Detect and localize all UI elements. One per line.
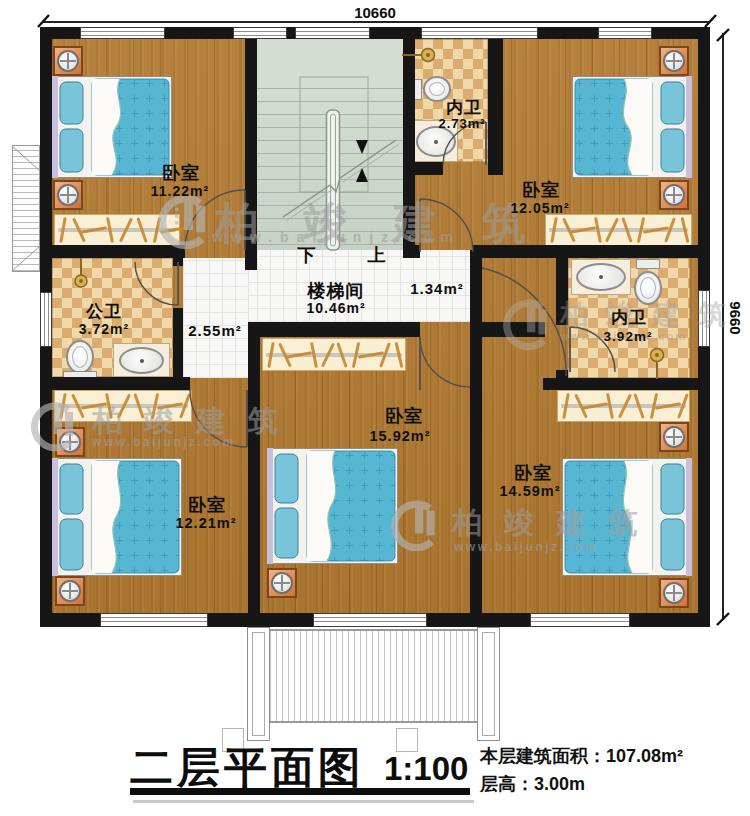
window	[598, 27, 652, 39]
room-area-bath-public: 3.72m²	[79, 321, 129, 337]
nightstand	[55, 576, 85, 606]
wall	[543, 378, 698, 390]
room-label-bedroom-bottom-left: 卧室	[188, 493, 226, 517]
wall	[248, 322, 420, 337]
stair-up-label: 上	[368, 243, 387, 267]
room-area-bath-inner-right: 3.92m²	[604, 329, 653, 344]
nightstand	[659, 46, 689, 76]
hallway-floor-joint	[248, 270, 257, 322]
wall	[488, 39, 503, 175]
window	[421, 27, 538, 39]
sink-basin	[119, 347, 164, 374]
lamp-icon	[57, 184, 79, 206]
stair-down-label: 下	[298, 243, 317, 267]
wardrobe	[262, 338, 406, 371]
dimension-line-top	[43, 21, 710, 23]
lamp-icon	[663, 50, 685, 72]
floor-plan-sheet: 10660 9660 柏竣建筑 www.baijunjz.com 柏竣建筑 ww…	[0, 0, 750, 816]
room-area-bedroom-bottom-left: 12.21m²	[175, 515, 236, 531]
wall	[470, 250, 482, 322]
window	[313, 613, 427, 627]
title-underline	[130, 788, 470, 795]
wardrobe	[557, 390, 690, 422]
window	[100, 613, 208, 627]
sink-basin	[416, 126, 456, 157]
hallway-floor-west	[183, 258, 248, 378]
stair-landing	[257, 39, 403, 77]
toilet-bowl	[66, 340, 94, 374]
window	[233, 27, 287, 39]
room-area-bedroom-top-left: 11.22m²	[151, 183, 209, 199]
sheet-scale: 1:100	[384, 750, 468, 788]
bed	[572, 76, 692, 178]
watermark-url: www.baijunjz.com	[454, 540, 598, 554]
room-area-bedroom-bottom-right: 14.59m²	[499, 483, 560, 499]
room-label-bath-public: 公卫	[86, 300, 122, 323]
watermark-logo	[502, 295, 552, 351]
room-area-stairwell: 10.46m²	[306, 300, 365, 316]
wall	[470, 337, 482, 615]
room-label-bath-inner-right: 内卫	[611, 306, 647, 329]
room-label-bedroom-top-left: 卧室	[162, 161, 200, 185]
sheet-area-info: 本层建筑面积：107.08m²	[480, 744, 683, 768]
wall	[40, 377, 190, 390]
lamp-icon	[57, 50, 79, 72]
bed	[52, 458, 182, 576]
nightstand	[659, 422, 689, 452]
watermark-logo	[390, 496, 440, 552]
room-area-bedroom-bottom-middle: 15.92m²	[369, 428, 430, 444]
lamp-icon	[663, 582, 685, 604]
room-area-bedroom-top-right: 12.05m²	[510, 200, 569, 216]
dimension-right: 9660	[727, 301, 744, 334]
watermark-url: www.baijunjz.com	[212, 229, 461, 245]
bed	[267, 448, 398, 564]
lamp-icon	[59, 580, 81, 602]
lamp-icon	[271, 572, 293, 594]
nightstand	[659, 578, 689, 608]
nightstand	[53, 46, 83, 76]
toilet-tank	[636, 259, 660, 269]
lamp-icon	[663, 426, 685, 448]
nightstand	[53, 180, 83, 210]
watermark-url: www.baijunjz.com	[92, 435, 236, 449]
nightstand	[659, 180, 689, 210]
room-area-bath-inner-top: 2.73m²	[438, 116, 485, 131]
watermark-logo	[30, 398, 78, 452]
deck-post-left	[247, 627, 270, 741]
window	[40, 292, 52, 347]
room-area-hall-west: 2.55m²	[188, 322, 242, 339]
title-underline-shadow	[133, 800, 474, 803]
dimension-top: 10660	[354, 4, 396, 21]
sheet-height-info: 层高：3.00m	[480, 772, 585, 796]
nightstand	[267, 568, 297, 598]
lamp-icon	[663, 184, 685, 206]
window	[295, 27, 370, 39]
wall	[556, 370, 568, 378]
watermark-brand: 柏竣建筑	[452, 503, 660, 544]
window	[80, 27, 165, 39]
bed	[52, 76, 172, 178]
room-label-bedroom-bottom-right: 卧室	[514, 461, 552, 485]
deck-post-foot	[396, 728, 418, 752]
wall	[173, 308, 183, 377]
room-area-hall-east: 1.34m²	[410, 280, 464, 297]
wall	[413, 162, 443, 175]
watermark-logo	[156, 190, 212, 250]
room-label-bedroom-bottom-middle: 卧室	[385, 404, 423, 428]
side-porch-roof	[12, 145, 40, 272]
room-label-bedroom-top-right: 卧室	[522, 178, 560, 202]
deck-post-right	[477, 627, 500, 741]
deck-railing	[270, 629, 477, 723]
window	[530, 613, 630, 627]
sink-basin	[576, 263, 626, 291]
wall	[248, 337, 260, 615]
